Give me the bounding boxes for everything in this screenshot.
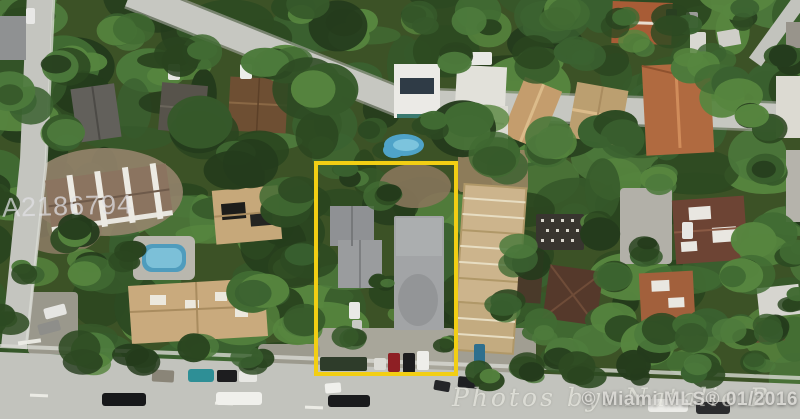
white-modern-building (394, 64, 440, 118)
aerial-scene (0, 0, 800, 419)
checkered-dark-roof (536, 214, 584, 250)
gray-house-nw-corner (0, 16, 26, 60)
gray-roof-ne (786, 22, 800, 48)
lot-gray-building-b (394, 216, 444, 330)
teal-car (188, 369, 214, 382)
rect-pool-left (142, 244, 186, 272)
green-awning (320, 357, 367, 371)
solar-panel (400, 78, 434, 94)
right-edge-building (786, 150, 800, 222)
red-car (388, 353, 400, 372)
aerial-photo: A2186794 Photos by: Natalie B © Miami ML… (0, 0, 800, 419)
